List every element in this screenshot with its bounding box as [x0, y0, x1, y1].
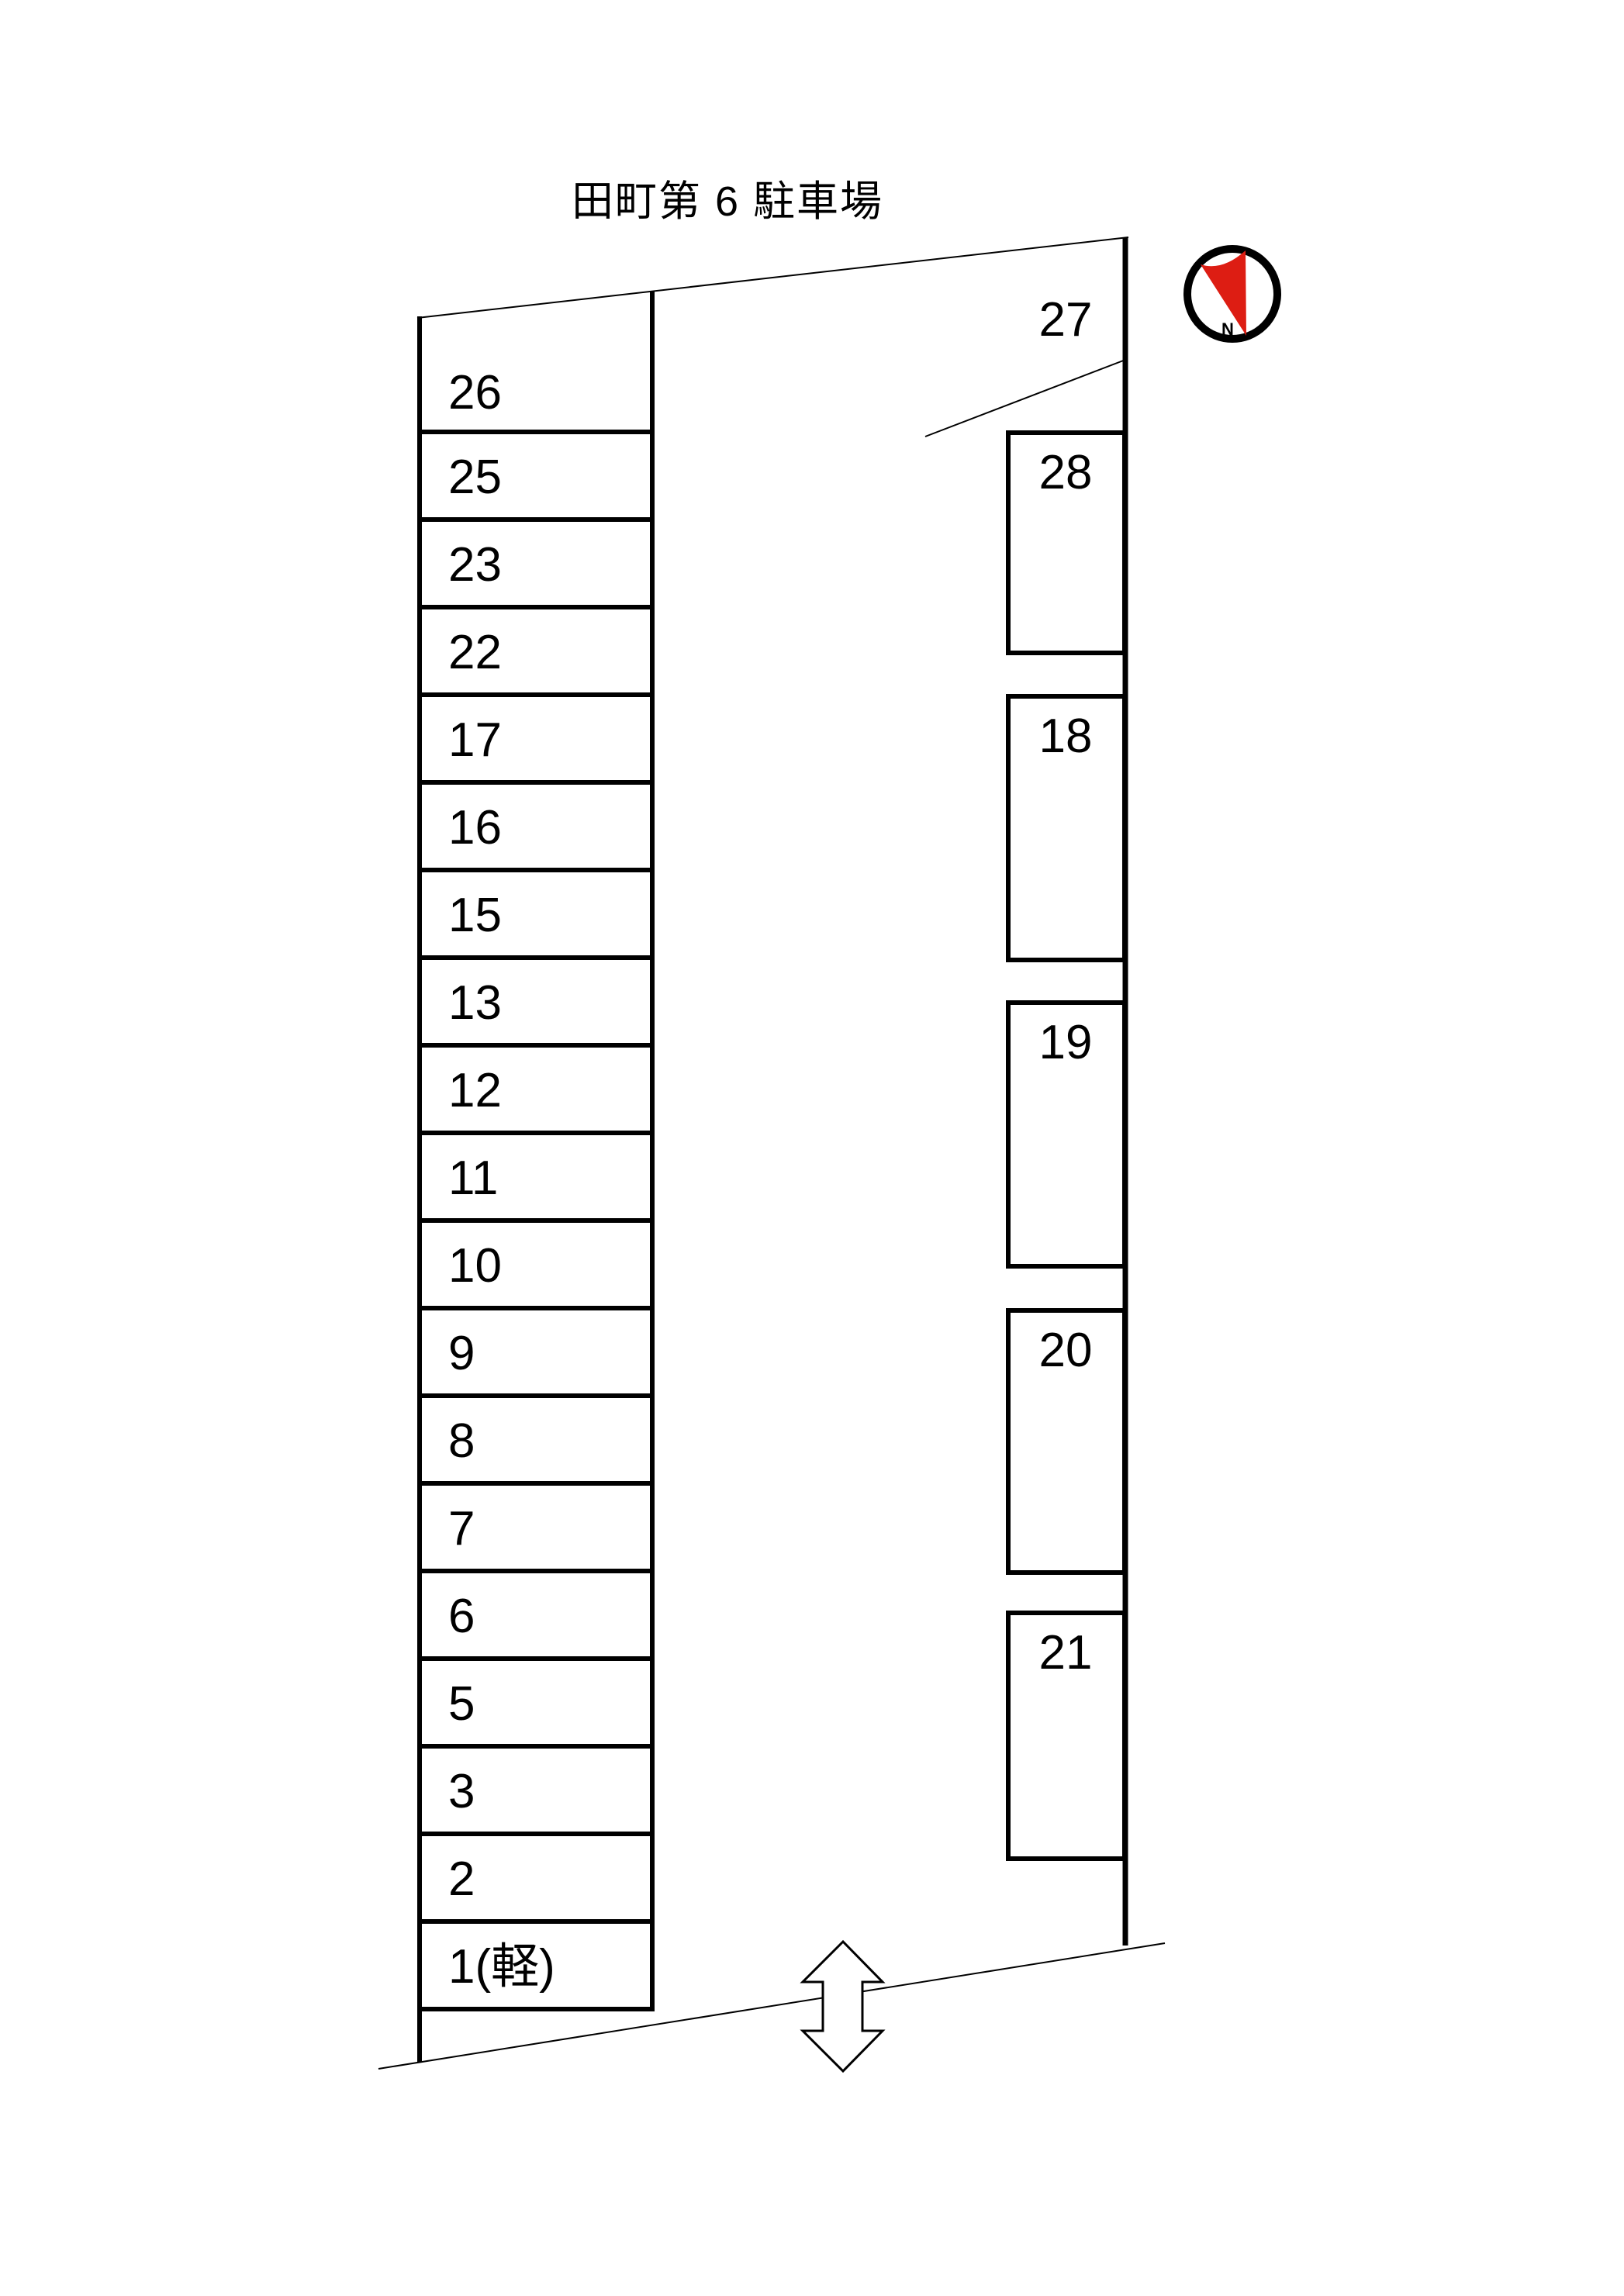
- parking-space-label: 8: [448, 1414, 475, 1468]
- parking-space-label: 28: [1039, 446, 1093, 499]
- parking-space-label: 7: [448, 1502, 475, 1555]
- parking-space-label: 11: [448, 1151, 498, 1205]
- parking-space-label: 26: [448, 366, 502, 419]
- parking-space-label: 23: [448, 538, 502, 592]
- parking-space-label: 2: [448, 1852, 475, 1906]
- compass-icon: N: [1187, 249, 1277, 339]
- open-space-27-label: 27: [1039, 293, 1093, 347]
- left-parking-column: 26 25 23 22 17 16 15 13 12 11 10 9 8 7 6…: [417, 292, 655, 2063]
- parking-space-label: 16: [448, 801, 502, 855]
- top-boundary-line: [417, 237, 1128, 318]
- parking-space-label: 12: [448, 1064, 502, 1117]
- parking-space-label: 5: [448, 1677, 475, 1731]
- parking-space-label: 3: [448, 1765, 475, 1818]
- parking-space-label: 13: [448, 976, 502, 1030]
- parking-space-label: 19: [1039, 1016, 1093, 1069]
- parking-space-label: 22: [448, 626, 502, 679]
- parking-space-label: 21: [1039, 1626, 1093, 1680]
- parking-space-label: 6: [448, 1590, 475, 1643]
- parking-space-label: 20: [1039, 1324, 1093, 1377]
- parking-space-label: 18: [1039, 710, 1093, 763]
- parking-lot-page: 田町第 6 駐車場: [0, 0, 1624, 2296]
- upper-right-inner-boundary-line: [925, 360, 1125, 437]
- entrance-arrow-icon: [803, 1942, 883, 2071]
- parking-space-label: 25: [448, 451, 502, 504]
- parking-space-label: 10: [448, 1239, 502, 1293]
- parking-space-label: 9: [448, 1327, 475, 1380]
- parking-space-label: 15: [448, 889, 502, 942]
- parking-space-label: 17: [448, 713, 502, 767]
- compass-north-label: N: [1221, 319, 1234, 339]
- right-parking-column: 28 18 19 20 21: [1008, 433, 1125, 1859]
- page-title: 田町第 6 駐車場: [572, 178, 883, 225]
- parking-space-label: 1(軽): [448, 1940, 555, 1994]
- parking-lot-diagram: 田町第 6 駐車場: [0, 0, 1624, 2296]
